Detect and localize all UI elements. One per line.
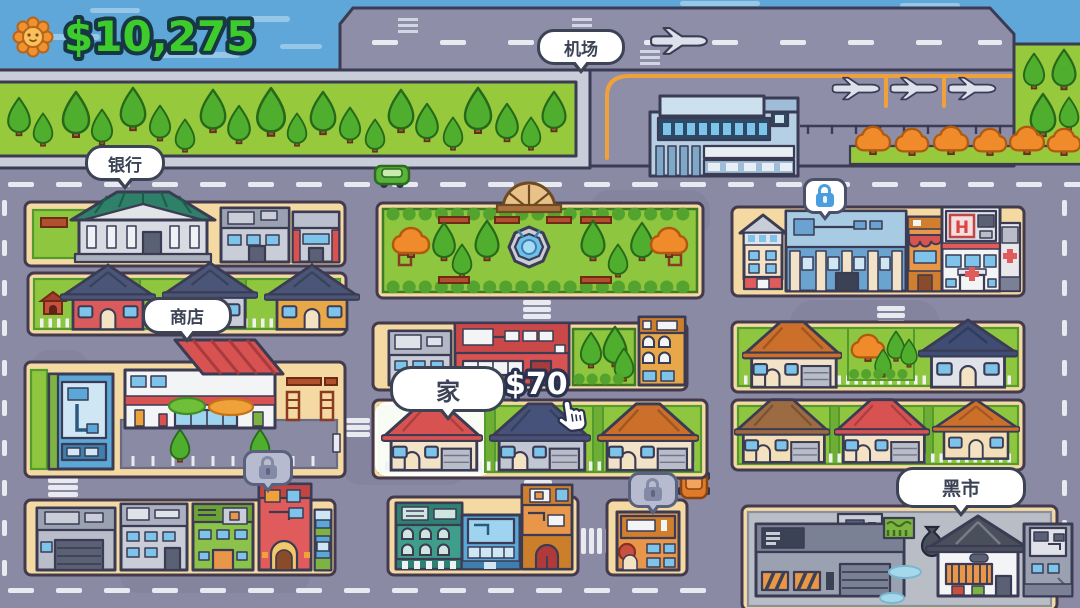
clinic-annex[interactable] — [1000, 223, 1020, 291]
airport-terminal[interactable] — [650, 96, 798, 176]
lock-icon — [816, 193, 834, 208]
lock-icon — [259, 465, 277, 480]
game-map: H — [0, 0, 1080, 608]
bank-door — [143, 232, 161, 256]
lock-icon — [644, 487, 662, 502]
money-amount: $10,275 — [64, 12, 255, 61]
car-green — [375, 166, 409, 188]
mouse-cursor — [555, 396, 590, 435]
label-bank[interactable]: 银行 — [85, 145, 165, 181]
block-south-center[interactable] — [388, 485, 578, 575]
lock-indicator-south-small[interactable] — [628, 472, 678, 508]
block-east-houses-2[interactable] — [732, 400, 1024, 470]
lock-indicator-southwest[interactable] — [243, 450, 293, 486]
gray-building-right[interactable] — [1024, 524, 1072, 596]
yard-trees — [848, 328, 917, 380]
puddle — [889, 566, 921, 578]
orange-apartments[interactable] — [639, 317, 685, 385]
teal-building[interactable] — [396, 503, 462, 569]
block-hospital-district[interactable]: H — [732, 207, 1024, 296]
sunflower-coin-icon — [12, 16, 54, 58]
blue-office-building[interactable] — [786, 211, 906, 291]
orange-small-building[interactable] — [617, 512, 679, 570]
block-market-district[interactable] — [25, 340, 345, 477]
blue-utility-building[interactable] — [49, 374, 113, 469]
bank-row-building-3[interactable] — [293, 212, 339, 262]
warehouse-dark[interactable] — [756, 514, 904, 596]
blue-shop[interactable] — [315, 510, 331, 570]
gate-post — [333, 434, 340, 452]
block-black-market[interactable] — [742, 506, 1072, 608]
svg-text:$70: $70 — [505, 367, 568, 402]
label-home[interactable]: 家 — [390, 366, 506, 412]
lock-indicator-hospital[interactable] — [803, 178, 847, 214]
label-black-market[interactable]: 黑市 — [896, 467, 1026, 508]
label-shop[interactable]: 商店 — [142, 297, 232, 334]
svg-text:H: H — [955, 218, 969, 238]
money-display: $10,275 — [12, 10, 300, 64]
red-tall-building[interactable] — [259, 484, 311, 570]
southwest-building-2[interactable] — [121, 504, 187, 570]
orange-shop[interactable] — [908, 217, 942, 291]
bank-row-building-2[interactable] — [221, 208, 289, 262]
green-building[interactable] — [193, 504, 253, 570]
label-airport[interactable]: 机场 — [537, 29, 625, 65]
orange-tower[interactable] — [522, 485, 572, 569]
block-east-houses-1[interactable] — [732, 320, 1024, 392]
block-bank-district[interactable] — [25, 192, 345, 266]
fountain — [509, 227, 549, 267]
blue-building[interactable] — [462, 515, 520, 569]
hex-tower[interactable] — [740, 215, 786, 289]
bench-icon — [41, 218, 67, 227]
warehouse-building[interactable] — [37, 508, 115, 570]
puddle — [880, 593, 904, 603]
hospital-building[interactable]: H — [942, 207, 1000, 291]
